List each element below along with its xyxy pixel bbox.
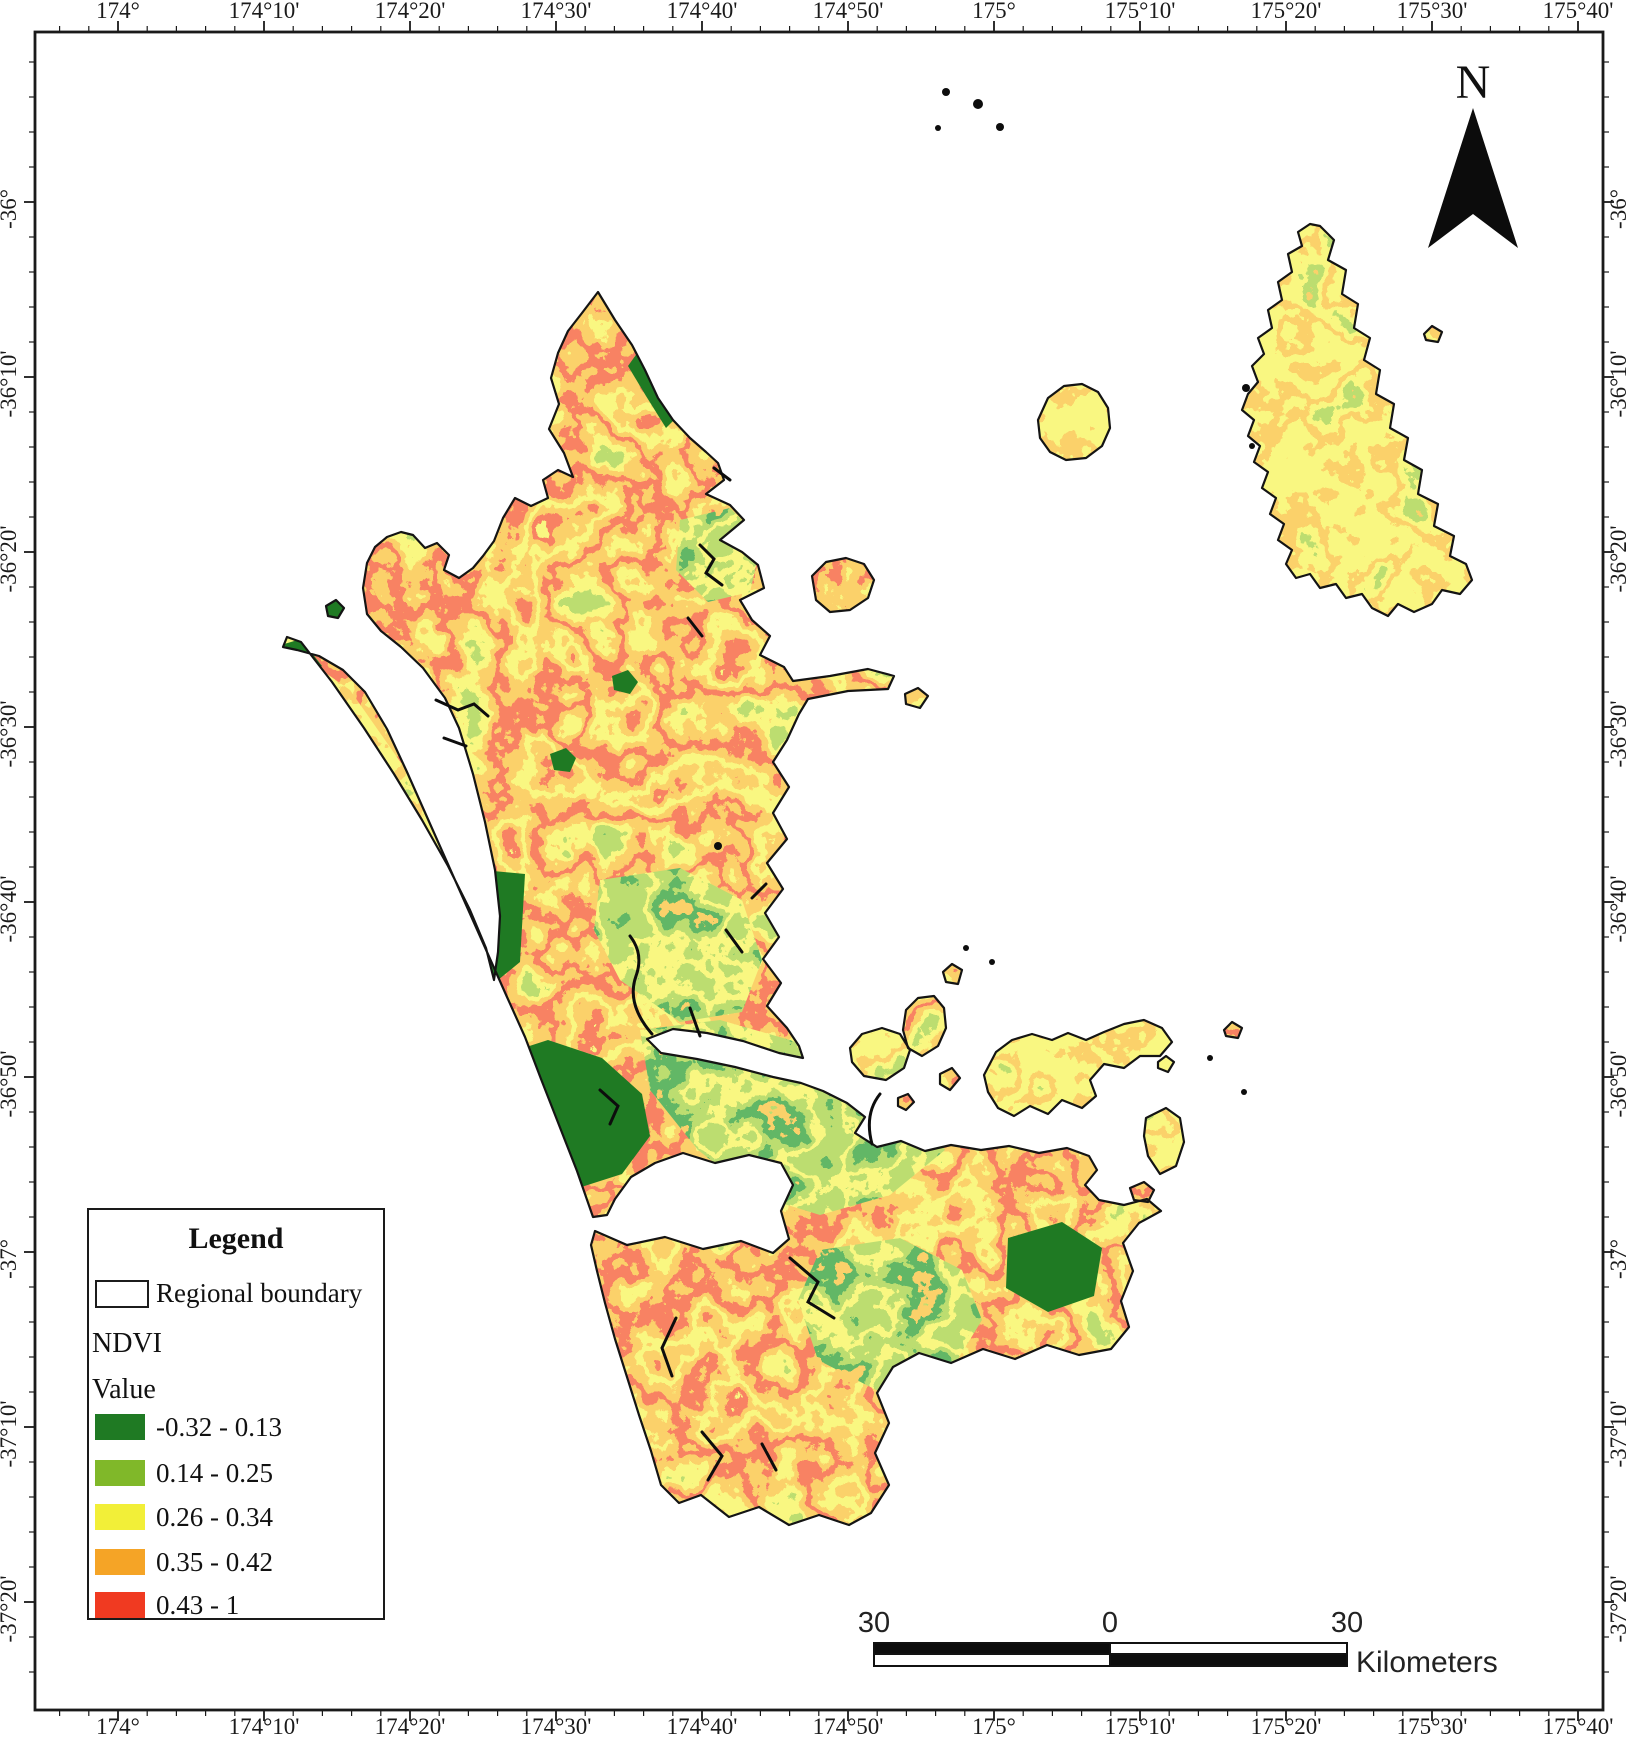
lat-tick-label: -37°20': [0, 1575, 21, 1642]
lon-tick-label: 174°30': [521, 1714, 592, 1739]
lon-tick-label: 174°: [96, 0, 140, 23]
islet-speck: [1207, 1055, 1213, 1061]
lon-tick-label: 174°10': [229, 1714, 300, 1739]
lon-tick-label: 174°40': [667, 0, 738, 23]
lat-tick-label: -36°40': [1606, 875, 1631, 942]
lon-tick-label: 175°20': [1251, 0, 1322, 23]
islet-speck: [989, 959, 995, 965]
ndvi-class-swatch-3: [95, 1504, 145, 1530]
ndvi-class-swatch-2: [95, 1460, 145, 1486]
lon-tick-label: 175°10': [1105, 1714, 1176, 1739]
islet-speck: [1241, 1089, 1247, 1095]
lat-tick-label: -36°: [0, 189, 21, 229]
scale-bar-unit: Kilometers: [1356, 1646, 1498, 1679]
ndvi-class-label-4: 0.35 - 0.42: [156, 1547, 273, 1578]
lon-tick-label: 175°20': [1251, 1714, 1322, 1739]
lon-tick-label: 175°40': [1543, 0, 1614, 23]
scale-label-right: 30: [1331, 1607, 1363, 1639]
scale-bar-segment: [874, 1654, 1110, 1666]
lon-tick-label: 175°30': [1397, 1714, 1468, 1739]
ndvi-class-label-1: -0.32 - 0.13: [156, 1412, 282, 1443]
lon-tick-label: 174°20': [375, 1714, 446, 1739]
lat-tick-label: -37°: [0, 1239, 21, 1279]
lat-tick-label: -36°20': [1606, 525, 1631, 592]
lon-tick-label: 175°10': [1105, 0, 1176, 23]
lon-tick-label: 174°: [96, 1714, 140, 1739]
ndvi-map-figure: 174°174°174°10'174°10'174°20'174°20'174°…: [0, 0, 1636, 1745]
legend-box: Legend Regional boundary NDVI Value -0.3…: [87, 1208, 385, 1620]
islet-speck: [714, 842, 722, 850]
regional-boundary-label: Regional boundary: [156, 1278, 362, 1309]
ndvi-class-swatch-5: [95, 1592, 145, 1618]
legend-title: Legend: [89, 1222, 383, 1256]
scale-bar-segment: [874, 1643, 1110, 1654]
scale-bar-segment: [1110, 1643, 1347, 1654]
lon-tick-label: 174°20': [375, 0, 446, 23]
legend-value-heading: Value: [92, 1374, 156, 1406]
lon-tick-label: 175°: [972, 1714, 1016, 1739]
lat-tick-label: -36°20': [0, 525, 21, 592]
ndvi-class-label-3: 0.26 - 0.34: [156, 1502, 273, 1533]
lat-tick-label: -37°10': [1606, 1400, 1631, 1467]
ndvi-class-swatch-1: [95, 1414, 145, 1440]
lat-tick-label: -36°40': [0, 875, 21, 942]
islet-speck: [996, 123, 1004, 131]
lon-tick-label: 174°50': [813, 0, 884, 23]
islet-speck: [1249, 443, 1255, 449]
north-arrow-label: N: [1456, 56, 1491, 109]
regional-boundary-swatch: [95, 1280, 149, 1308]
lat-tick-label: -36°: [1606, 189, 1631, 229]
lat-tick-label: -37°20': [1606, 1575, 1631, 1642]
lat-tick-label: -36°30': [1606, 700, 1631, 767]
ndvi-class-label-5: 0.43 - 1: [156, 1590, 239, 1621]
lat-tick-label: -37°: [1606, 1239, 1631, 1279]
scale-bar-segment: [1110, 1654, 1347, 1666]
lon-tick-label: 175°30': [1397, 0, 1468, 23]
ndvi-class-label-2: 0.14 - 0.25: [156, 1458, 273, 1489]
scale-label-left: 30: [858, 1607, 890, 1639]
islet-speck: [973, 99, 983, 109]
lat-tick-label: -36°10': [0, 350, 21, 417]
lat-tick-label: -36°50': [0, 1050, 21, 1117]
lat-tick-label: -36°30': [0, 700, 21, 767]
lon-tick-label: 174°40': [667, 1714, 738, 1739]
islet-speck: [935, 125, 941, 131]
ndvi-class-swatch-4: [95, 1549, 145, 1575]
lat-tick-label: -37°10': [0, 1400, 21, 1467]
legend-layer-name: NDVI: [92, 1328, 162, 1360]
lon-tick-label: 174°50': [813, 1714, 884, 1739]
lon-tick-label: 174°30': [521, 0, 592, 23]
lon-tick-label: 174°10': [229, 0, 300, 23]
lat-tick-label: -36°50': [1606, 1050, 1631, 1117]
islet-speck: [942, 88, 950, 96]
islet-speck: [963, 945, 969, 951]
scale-label-mid: 0: [1102, 1607, 1118, 1639]
lat-tick-label: -36°10': [1606, 350, 1631, 417]
lon-tick-label: 175°: [972, 0, 1016, 23]
lon-tick-label: 175°40': [1543, 1714, 1614, 1739]
islet-speck: [1242, 384, 1250, 392]
